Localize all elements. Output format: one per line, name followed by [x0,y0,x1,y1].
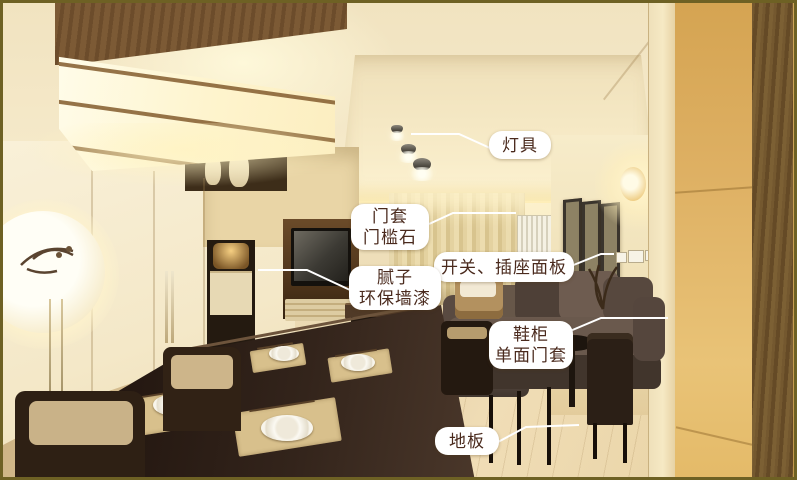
label-shoe-cabinet-line2: 单面门套 [489,345,573,366]
lamp-glow [23,123,383,213]
label-wall-putty-line1: 腻子 [349,267,441,288]
spotlight-glow [387,131,407,141]
plate [269,346,299,361]
armchair-cushion [460,281,496,297]
spotlight-glow [407,167,437,181]
sofa-armrest [633,297,665,361]
plate [341,354,375,371]
switch-socket-panel [628,250,644,263]
label-lighting: 灯具 [489,131,551,159]
dark-chair [587,333,633,425]
label-lighting-text: 灯具 [489,135,551,156]
panel-edge [793,3,797,480]
label-floor-text: 地板 [435,431,499,452]
label-wall-putty: 腻子 环保墙漆 [349,266,441,310]
niche-lamp-glow [213,243,249,269]
label-door-casing-line1: 门套 [351,206,429,227]
label-shoe-cabinet: 鞋柜 单面门套 [489,321,573,369]
cabinet-handle [171,271,174,343]
label-wall-putty-line2: 环保墙漆 [349,288,441,309]
chair-leg [623,423,627,463]
wall-sconce [620,167,646,201]
cabinet-handle [165,271,168,343]
dining-chair-cushion [29,401,133,445]
switch-socket-panel [616,252,627,263]
label-floor: 地板 [435,427,499,455]
tv-screen [294,231,348,281]
chair-leg [593,423,597,459]
label-switch-panel-text: 开关、插座面板 [434,257,574,278]
niche-cabinet [210,271,252,315]
label-switch-panel: 开关、插座面板 [434,252,574,282]
dining-chair-cushion [447,327,487,339]
label-door-casing: 门套 门槛石 [351,204,429,250]
annotated-room-photo: 灯具 门套 门槛石 开关、插座面板 腻子 环保墙漆 鞋柜 单面门套 地板 [0,0,797,480]
chair-leg [517,391,521,465]
label-shoe-cabinet-line1: 鞋柜 [489,324,573,345]
wood-grain-panel [752,3,794,480]
chair-leg [547,387,551,465]
shoe-cabinet [675,3,753,480]
plate [261,415,313,441]
label-door-casing-line2: 门槛石 [351,227,429,248]
hallway-door-frame [648,3,677,480]
dining-chair-cushion [171,355,233,389]
